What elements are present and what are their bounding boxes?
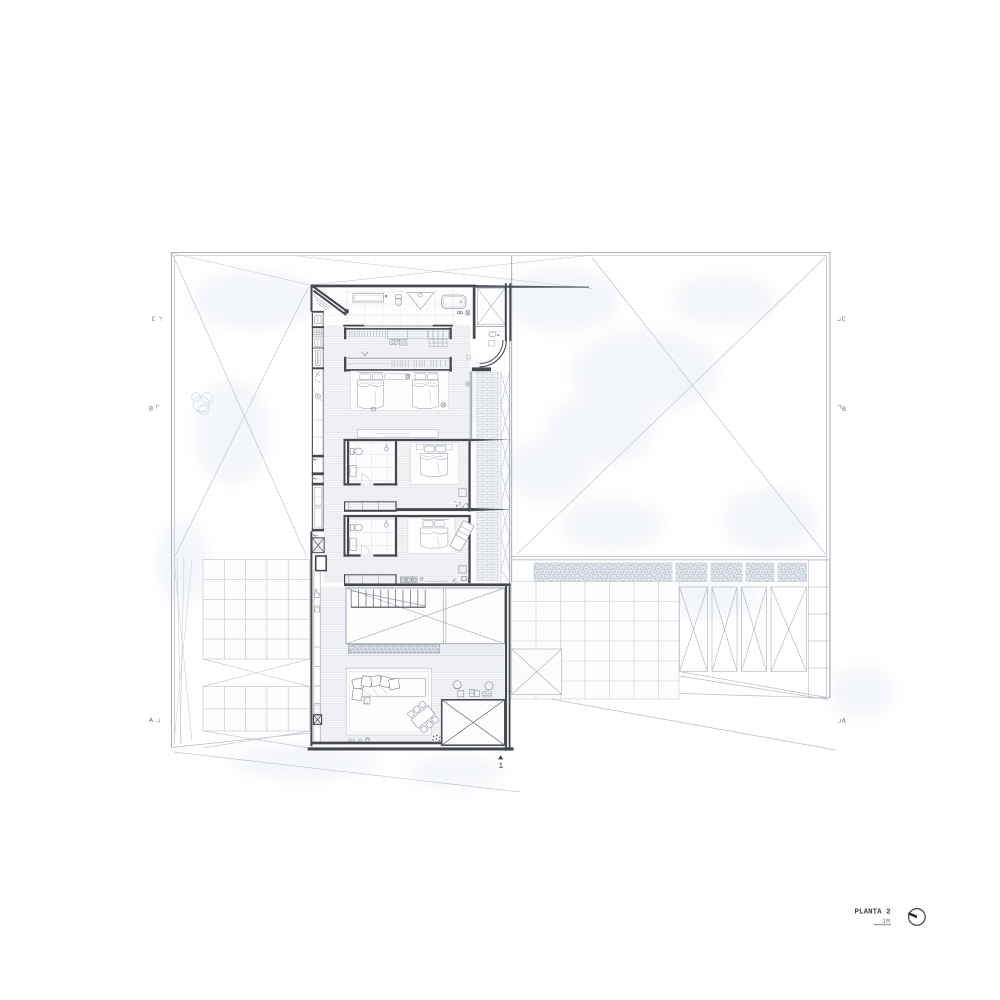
svg-text:328.45: 328.45 bbox=[348, 740, 364, 744]
svg-text:A: A bbox=[149, 717, 153, 724]
svg-text:B: B bbox=[149, 405, 153, 412]
svg-text:B: B bbox=[842, 406, 846, 413]
svg-text:A: A bbox=[842, 718, 846, 725]
svg-text:PLANTA 2: PLANTA 2 bbox=[855, 909, 891, 917]
svg-text:1: 1 bbox=[498, 762, 503, 771]
svg-text:C: C bbox=[152, 316, 156, 323]
svg-text:C: C bbox=[842, 316, 846, 323]
